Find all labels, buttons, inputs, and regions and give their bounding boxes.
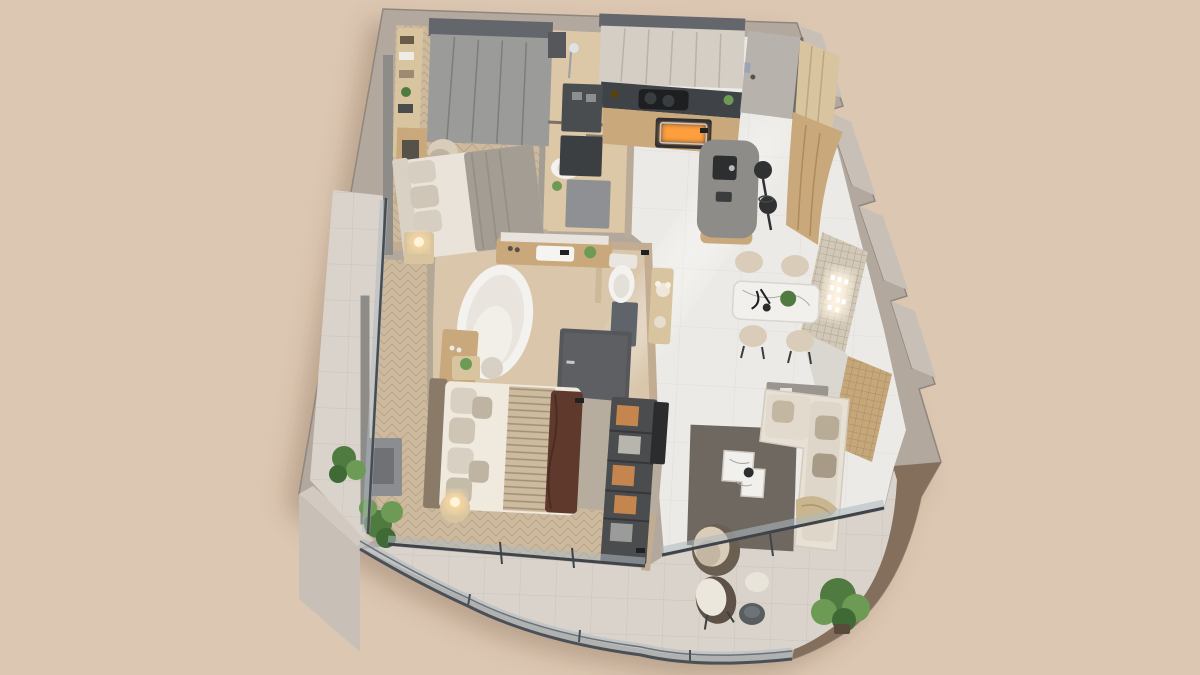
pouf [481, 357, 503, 379]
nightstand-lamp [404, 232, 434, 264]
dining-table [732, 281, 820, 323]
shower-cabinet [548, 32, 566, 58]
tv-console-door [372, 448, 394, 484]
door-keypad [744, 63, 751, 73]
upper-cabinets [597, 14, 745, 89]
floor-plan-render [0, 0, 1200, 675]
wardrobe [425, 18, 553, 146]
shower-head [569, 43, 579, 53]
floor-plan-canvas [0, 0, 1200, 675]
vanity [496, 232, 613, 268]
coffee-station [561, 83, 603, 132]
flower-console [648, 267, 674, 344]
sofa-pillow [814, 415, 840, 441]
sofa-pillow [812, 453, 838, 479]
entry-door [740, 30, 802, 119]
oven [655, 118, 712, 150]
kitchen-island [696, 139, 760, 245]
plant-pot [834, 624, 850, 634]
second-bedroom [392, 18, 553, 264]
plant-table [452, 356, 503, 380]
sofa-pillow [771, 400, 794, 423]
basin-plant [552, 181, 562, 191]
round-side-table [745, 572, 769, 592]
bed-throw [545, 390, 583, 514]
